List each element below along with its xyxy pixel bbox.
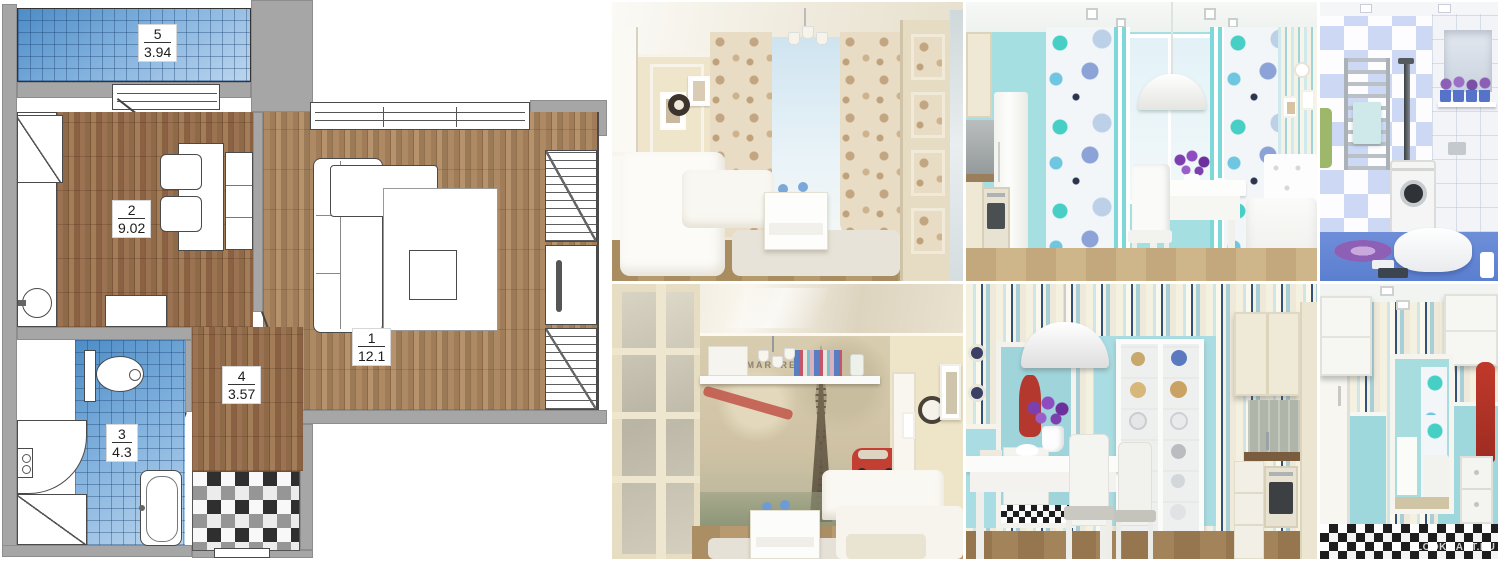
book-row (794, 350, 842, 376)
clock-face (674, 100, 684, 110)
door-handle (1338, 386, 1341, 406)
car-windows (858, 450, 888, 459)
sofa-chaise (682, 170, 774, 228)
plate (1171, 474, 1185, 488)
lower-cabinet (1234, 461, 1264, 559)
window-divider (456, 107, 457, 127)
room-area: 12.1 (358, 347, 385, 364)
room-area: 4.3 (112, 443, 132, 460)
kitchen-floor-wood (1395, 497, 1449, 509)
wall-hall-living (253, 112, 263, 312)
room-label-kitchen: 2 9.02 (112, 200, 151, 238)
cabinet-line (1446, 330, 1496, 332)
kitchen-island-cabinet (105, 295, 167, 327)
decor-candle-blue (798, 182, 808, 192)
drawer-knob (1474, 470, 1479, 475)
oven-bar (987, 193, 1005, 197)
pendant-wire (1064, 284, 1066, 326)
wall-picture (1282, 96, 1298, 118)
plate (1170, 381, 1187, 398)
wall-picture (688, 76, 710, 106)
wardrobe-bottom (545, 328, 597, 410)
spotlight (1438, 4, 1451, 13)
photo-dining-room-striped-wallpaper (966, 284, 1317, 559)
sink-faucet (18, 300, 26, 306)
kitchen-chair (160, 154, 202, 190)
chandelier-shade (788, 32, 800, 45)
ceiling-reflection (726, 288, 829, 328)
toilet-plan (96, 356, 144, 392)
entry-door (214, 548, 270, 558)
sink-tap (22, 465, 31, 474)
spotlight (1360, 4, 1372, 13)
chandelier-shade (758, 350, 769, 362)
wall-bath-hall (185, 340, 192, 412)
countertop (966, 174, 994, 182)
chair-leg (1148, 522, 1153, 559)
red-coat (1476, 362, 1495, 462)
wall-picture (902, 412, 915, 439)
chair-back (1132, 164, 1170, 236)
towel-green (1320, 108, 1332, 168)
room-number: 4 (228, 368, 255, 385)
storage-boxes (708, 346, 748, 376)
window-line (117, 93, 217, 94)
mirror-panel (664, 292, 694, 554)
table-shelf (769, 223, 823, 235)
round-rug-purple (1334, 240, 1392, 262)
upper-cabinet (966, 32, 992, 118)
chair-leg (1106, 520, 1112, 559)
wood-floor (966, 248, 1317, 281)
fridge-handle (998, 142, 1000, 182)
wardrobe-mirrored (612, 284, 700, 559)
toilet (1394, 228, 1472, 272)
mirror-strip (950, 10, 963, 281)
wall-clock (668, 94, 690, 116)
kitchen-table (1397, 437, 1417, 495)
balcony-floor (17, 8, 251, 82)
backsplash-glass (966, 120, 994, 182)
chandelier-shade (772, 356, 783, 368)
doorway-to-kitchen (1390, 354, 1454, 514)
wood-floor (966, 531, 1317, 559)
room-area: 3.94 (144, 43, 171, 60)
window-line (117, 101, 217, 102)
room-label-living: 1 12.1 (352, 328, 391, 366)
window-line (315, 112, 525, 113)
mirror-panel (622, 292, 656, 554)
oven-bar (1269, 472, 1293, 476)
window-divider (383, 107, 384, 127)
wardrobe-panel (911, 34, 945, 80)
chair-cushion-gray (1114, 510, 1156, 522)
plate (1130, 382, 1146, 398)
purple-tulips (1024, 396, 1076, 430)
interior-design-collage: 5 3.94 2 9.02 (0, 0, 1500, 561)
wardrobe-panel (911, 208, 945, 254)
living-window (310, 102, 530, 130)
oven-window (987, 203, 1005, 229)
bath-scale (1378, 268, 1408, 278)
flush-plate (1448, 142, 1466, 155)
countertop (1244, 452, 1304, 461)
room-label-balcony: 5 3.94 (138, 24, 177, 62)
plate (1171, 444, 1186, 459)
plate (1170, 412, 1188, 430)
kitchen-cabinet (225, 152, 253, 250)
chandelier-shade (802, 26, 814, 39)
kitchen-bench (1423, 455, 1449, 499)
photo-kitchen-dining-turquoise (966, 2, 1317, 281)
window-line (315, 120, 525, 121)
coffee-table-plan (409, 250, 457, 300)
kitchen-fridge (17, 115, 63, 183)
bath-sink (17, 448, 33, 478)
cabinet-shelf-line (226, 217, 252, 218)
sink-tap (22, 454, 31, 463)
overhead-cabinet-left (1320, 296, 1372, 376)
washer-door (1400, 180, 1427, 207)
floor-plan: 5 3.94 2 9.02 (0, 0, 612, 561)
faucet (1266, 432, 1269, 450)
teapot (1016, 444, 1038, 456)
curtain-right (840, 32, 904, 237)
chair-cushion-gray (1064, 506, 1114, 520)
oven-window (1269, 482, 1293, 514)
table-shelf (756, 537, 814, 547)
toilet-flush (129, 369, 141, 381)
wardrobe-panel (911, 92, 945, 138)
washer-panel (1392, 168, 1434, 171)
wall-shelf (700, 376, 880, 384)
sofa-cushion-line (316, 273, 340, 274)
watermark-text: LOOKMART.RU (1416, 542, 1495, 553)
upper-cabinets (1234, 312, 1300, 396)
hall-checker-floor (1001, 505, 1071, 523)
decor-cup-blue (780, 500, 790, 510)
plate (1131, 352, 1145, 366)
wall-picture (1301, 90, 1315, 110)
curtain-floral-left (1046, 27, 1114, 272)
niche-shelf (1438, 102, 1496, 107)
toilet-tank (84, 350, 96, 402)
wardrobe (900, 20, 950, 281)
room-area: 9.02 (118, 219, 145, 236)
wall-plate-decor (968, 344, 986, 362)
photo-bathroom-blue-tile (1320, 2, 1498, 281)
towel-blue (1353, 102, 1381, 144)
room-area: 3.57 (228, 385, 255, 402)
spotlight (1204, 8, 1216, 20)
decor-lantern (850, 354, 864, 376)
wall-plate-decor (968, 384, 986, 402)
drawer-knob (1474, 502, 1479, 507)
bathtub-faucet (139, 505, 145, 511)
ottoman (846, 534, 926, 559)
coffee-table (750, 510, 820, 559)
drawer-line (1462, 488, 1491, 490)
wall-balcony-right (251, 0, 313, 112)
wardrobe-top (545, 150, 597, 242)
table-leg (976, 492, 984, 559)
oven (1264, 466, 1298, 528)
toilet-brush (1480, 252, 1494, 278)
drawer-line (1235, 492, 1263, 494)
spotlight (1086, 8, 1098, 20)
chandelier-shade (784, 348, 795, 360)
kitchen-chair (160, 196, 202, 232)
pendant-wire (1171, 2, 1173, 78)
shoe-cabinet (1460, 456, 1493, 524)
wall-kitchen-bath (17, 327, 192, 340)
wall-bath-bottom (2, 545, 192, 557)
tv-plan (556, 260, 562, 312)
flower-vase (1042, 426, 1064, 452)
room-number: 2 (118, 202, 145, 219)
coffee-table (764, 192, 828, 250)
wardrobe-stile (656, 284, 666, 559)
pendant-dome-lamp (1021, 322, 1109, 368)
room-number: 5 (144, 26, 171, 43)
doorway-to-hall (996, 342, 1076, 528)
tall-cabinet (1300, 302, 1317, 559)
wall-left (2, 4, 17, 556)
room-number: 1 (358, 330, 385, 347)
photo-living-room-classic-cream (612, 2, 963, 281)
room-label-hall: 4 3.57 (222, 366, 261, 404)
entry-floor (192, 471, 300, 551)
picture-art (946, 372, 957, 414)
picture-art (693, 81, 705, 101)
mural-red-ribbon (702, 386, 793, 421)
picture-art (1287, 102, 1295, 114)
wardrobe-panel (911, 150, 945, 196)
plate (1171, 350, 1187, 366)
room-label-bathroom: 3 4.3 (106, 424, 138, 462)
plate (1129, 412, 1147, 430)
bathtub-inner (146, 476, 178, 542)
chair-leg (1066, 520, 1072, 559)
wall-living-bottom (300, 410, 607, 424)
washing-machine (1390, 160, 1436, 234)
cabinet-shelf-line (226, 185, 252, 186)
kitchen-sink (22, 288, 52, 318)
chandelier-shade (816, 32, 828, 45)
cabinet-divider (1266, 314, 1269, 394)
drawer-line (1235, 524, 1263, 526)
cabinet-divider (1158, 344, 1163, 534)
round-mirror (1294, 62, 1310, 78)
plate (1170, 504, 1186, 520)
ceiling-light (1396, 300, 1410, 310)
wall-picture (940, 364, 961, 420)
room-number: 3 (112, 426, 132, 443)
tv-stand-plan (545, 245, 597, 325)
chandelier-stem (772, 336, 774, 352)
cabinet-line (1322, 336, 1370, 338)
chair-leg (1116, 522, 1121, 559)
shower-door-plan (17, 494, 87, 545)
photo-hallway-checkered-floor: LOOKMART.RU (1320, 284, 1498, 559)
ceiling-light (1380, 286, 1394, 296)
bathtub-plan (140, 470, 182, 546)
backsplash (1248, 400, 1301, 452)
curtain-stripe-right (1210, 27, 1224, 272)
oven (982, 187, 1010, 251)
photo-living-room-paris-mural: MONTMARTRE (612, 284, 963, 559)
shower-head (1398, 58, 1414, 64)
chair-seat (1128, 230, 1172, 243)
